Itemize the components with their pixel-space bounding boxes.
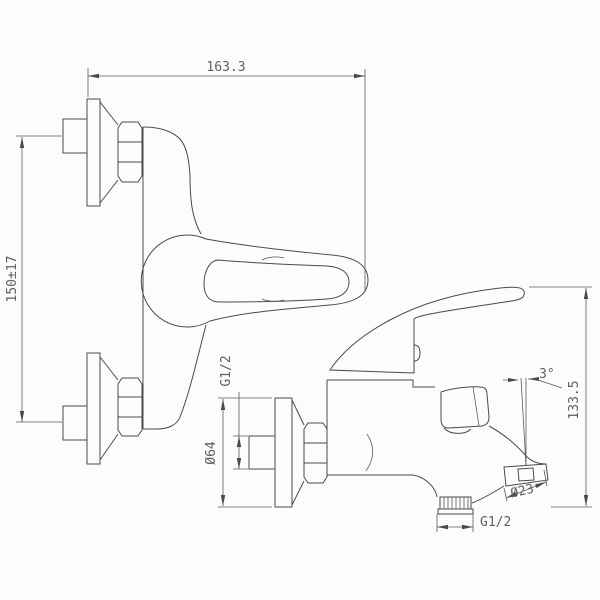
pipe-stub: [63, 119, 87, 153]
pipe-stub: [249, 436, 275, 469]
hex-nut-facets: [304, 443, 327, 463]
hex-nut: [118, 378, 142, 436]
escutcheon-plate: [87, 99, 100, 206]
arrowhead: [221, 399, 225, 410]
body-upper-edge: [143, 127, 201, 234]
knob-base-cap: [444, 428, 471, 433]
body-arc-detail: [366, 434, 373, 471]
knob-face-line: [473, 387, 479, 426]
wall-connector-side: [249, 398, 327, 507]
arrowhead: [535, 482, 546, 488]
escutcheon-cone-edge: [292, 400, 304, 425]
escutcheon-cone-edge: [292, 481, 304, 505]
dimension-spout-angle: 3°: [503, 367, 562, 466]
side-view: [249, 287, 548, 514]
spout-aerator: [518, 468, 534, 481]
thread-hatching: [444, 497, 468, 509]
arrowhead: [20, 137, 24, 148]
wall-connector-top: [63, 99, 142, 206]
arrowhead: [584, 288, 588, 299]
diverter-knob: [441, 387, 489, 434]
handle-highlight: [262, 299, 284, 301]
dimension-overall-height: 133.5: [529, 287, 592, 507]
handle-tab: [414, 345, 420, 361]
arrowhead: [528, 377, 539, 381]
faucet-body-front: [143, 127, 206, 429]
extension-lines: [529, 287, 592, 507]
front-view: [63, 99, 368, 464]
body-fillet: [413, 475, 437, 497]
dimension-spout-outlet-diameter: Ø23: [504, 470, 547, 502]
arrowhead: [237, 458, 241, 469]
body-block: [327, 380, 413, 475]
dimension-shower-outlet-thread: G1/2: [437, 514, 511, 532]
escutcheon-cone-edge: [100, 357, 118, 380]
arrowhead: [237, 436, 241, 447]
arrowhead: [508, 378, 519, 382]
wall-connector-bottom: [63, 353, 142, 464]
dim-mount-spacing-label: 150±17: [5, 256, 20, 303]
handle-side: [330, 287, 524, 373]
extension-lines: [437, 514, 473, 532]
dim-overall-height-label: 133.5: [567, 380, 582, 419]
spout-lower-profile: [472, 486, 504, 503]
arrowhead: [354, 74, 365, 78]
handle-front: [141, 235, 368, 327]
dim-overall-width-label: 163.3: [206, 60, 245, 75]
dim-escutcheon-diameter-label: Ø64: [204, 441, 219, 465]
body-top-edge: [327, 380, 435, 387]
extension-lines: [233, 436, 248, 469]
handle-outer-outline: [141, 235, 368, 327]
arrowhead: [221, 495, 225, 506]
pipe-stub: [63, 406, 87, 440]
arrowhead: [437, 525, 448, 529]
handle-dome-and-lever: [330, 287, 524, 373]
knob-outline: [441, 387, 489, 428]
technical-drawing-sheet: 163.3 150±17 G1/2 Ø64: [0, 0, 600, 600]
dim-wall-inlet-thread-label: G1/2: [219, 355, 234, 386]
arrowhead: [88, 74, 99, 78]
dimension-escutcheon-diameter: Ø64: [204, 398, 272, 507]
escutcheon-plate: [275, 398, 292, 507]
handle-highlight: [262, 257, 284, 260]
hex-nut: [118, 122, 142, 182]
hex-nut-facets: [118, 142, 142, 162]
escutcheon-cone-edge: [100, 102, 118, 125]
escutcheon-cone-edge: [100, 434, 118, 460]
faucet-technical-drawing: 163.3 150±17 G1/2 Ø64: [0, 0, 600, 600]
arrowhead: [462, 525, 473, 529]
shower-outlet-thread: [440, 497, 471, 509]
shower-outlet-flange: [438, 509, 473, 514]
handle-inner-outline: [204, 260, 349, 302]
arrowhead: [20, 411, 24, 422]
extension-lines: [88, 68, 365, 292]
body-lower-edge: [143, 325, 206, 429]
arrowhead: [584, 495, 588, 506]
hex-nut-facets: [118, 397, 142, 417]
extension-lines: [16, 136, 62, 422]
dim-shower-outlet-label: G1/2: [480, 515, 511, 530]
extension-lines: [218, 398, 272, 507]
spout-upper-profile: [489, 426, 546, 464]
dimensions: 163.3 150±17 G1/2 Ø64: [5, 60, 592, 532]
hex-nut: [304, 423, 327, 483]
dim-spout-angle-label: 3°: [539, 367, 555, 382]
dimension-wall-mount-spacing: 150±17: [5, 136, 62, 422]
escutcheon-plate: [87, 353, 100, 464]
dimension-overall-width: 163.3: [88, 60, 365, 292]
escutcheon-cone-edge: [100, 180, 118, 203]
